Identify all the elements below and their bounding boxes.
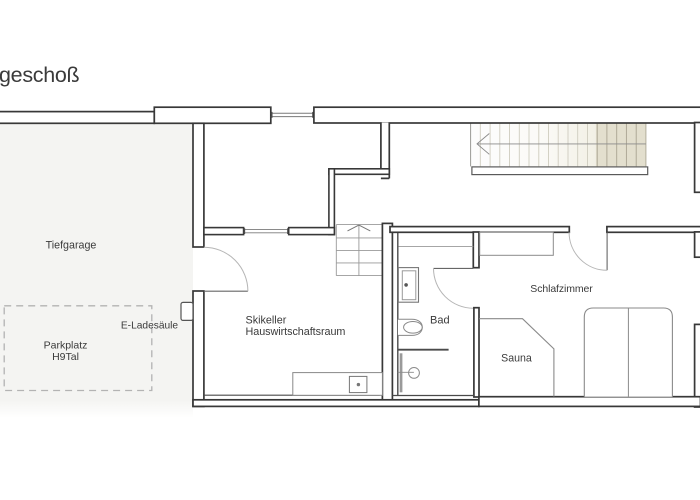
svg-text:Parkplatz: Parkplatz <box>44 340 88 352</box>
svg-text:E-Ladesäule: E-Ladesäule <box>121 321 179 332</box>
svg-text:Hauswirtschaftsraum: Hauswirtschaftsraum <box>246 326 346 338</box>
svg-text:Skikeller: Skikeller <box>246 315 287 327</box>
svg-text:Sauna: Sauna <box>501 353 532 365</box>
svg-text:Bad: Bad <box>430 315 450 327</box>
svg-text:Tiefgarage: Tiefgarage <box>46 240 97 252</box>
svg-text:H9Tal: H9Tal <box>52 351 79 363</box>
svg-text:geschoß: geschoß <box>0 63 80 87</box>
svg-text:Schlafzimmer: Schlafzimmer <box>530 283 593 295</box>
